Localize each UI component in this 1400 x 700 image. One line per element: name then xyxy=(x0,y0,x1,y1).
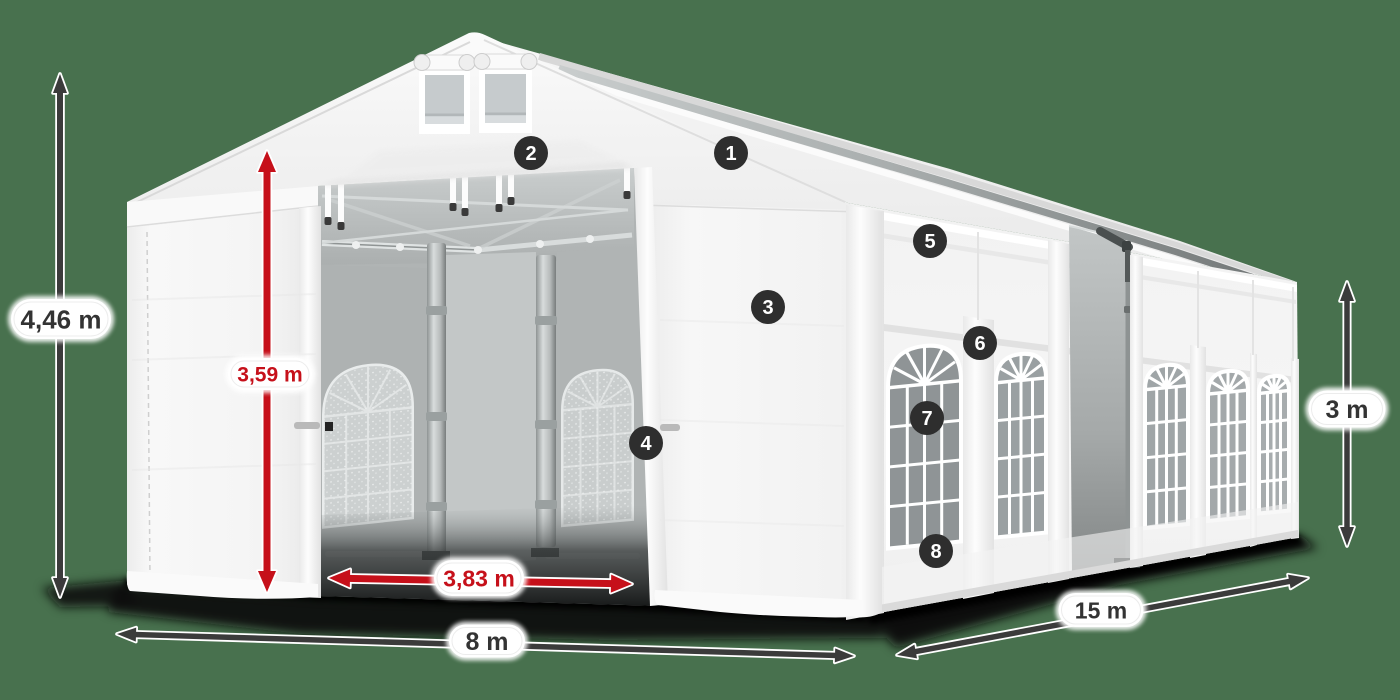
svg-text:15 m: 15 m xyxy=(1075,597,1127,623)
svg-text:2: 2 xyxy=(525,143,536,165)
svg-text:4: 4 xyxy=(640,433,652,455)
svg-text:6: 6 xyxy=(974,333,985,355)
svg-text:3: 3 xyxy=(762,297,773,319)
svg-text:8: 8 xyxy=(930,541,941,563)
svg-text:3,83 m: 3,83 m xyxy=(443,565,515,591)
svg-text:3 m: 3 m xyxy=(1325,396,1368,424)
svg-text:1: 1 xyxy=(725,143,736,165)
svg-text:4,46 m: 4,46 m xyxy=(21,304,102,334)
svg-text:3,59 m: 3,59 m xyxy=(237,364,302,387)
svg-text:8 m: 8 m xyxy=(465,628,508,656)
svg-text:5: 5 xyxy=(924,231,935,253)
svg-text:7: 7 xyxy=(921,408,932,430)
